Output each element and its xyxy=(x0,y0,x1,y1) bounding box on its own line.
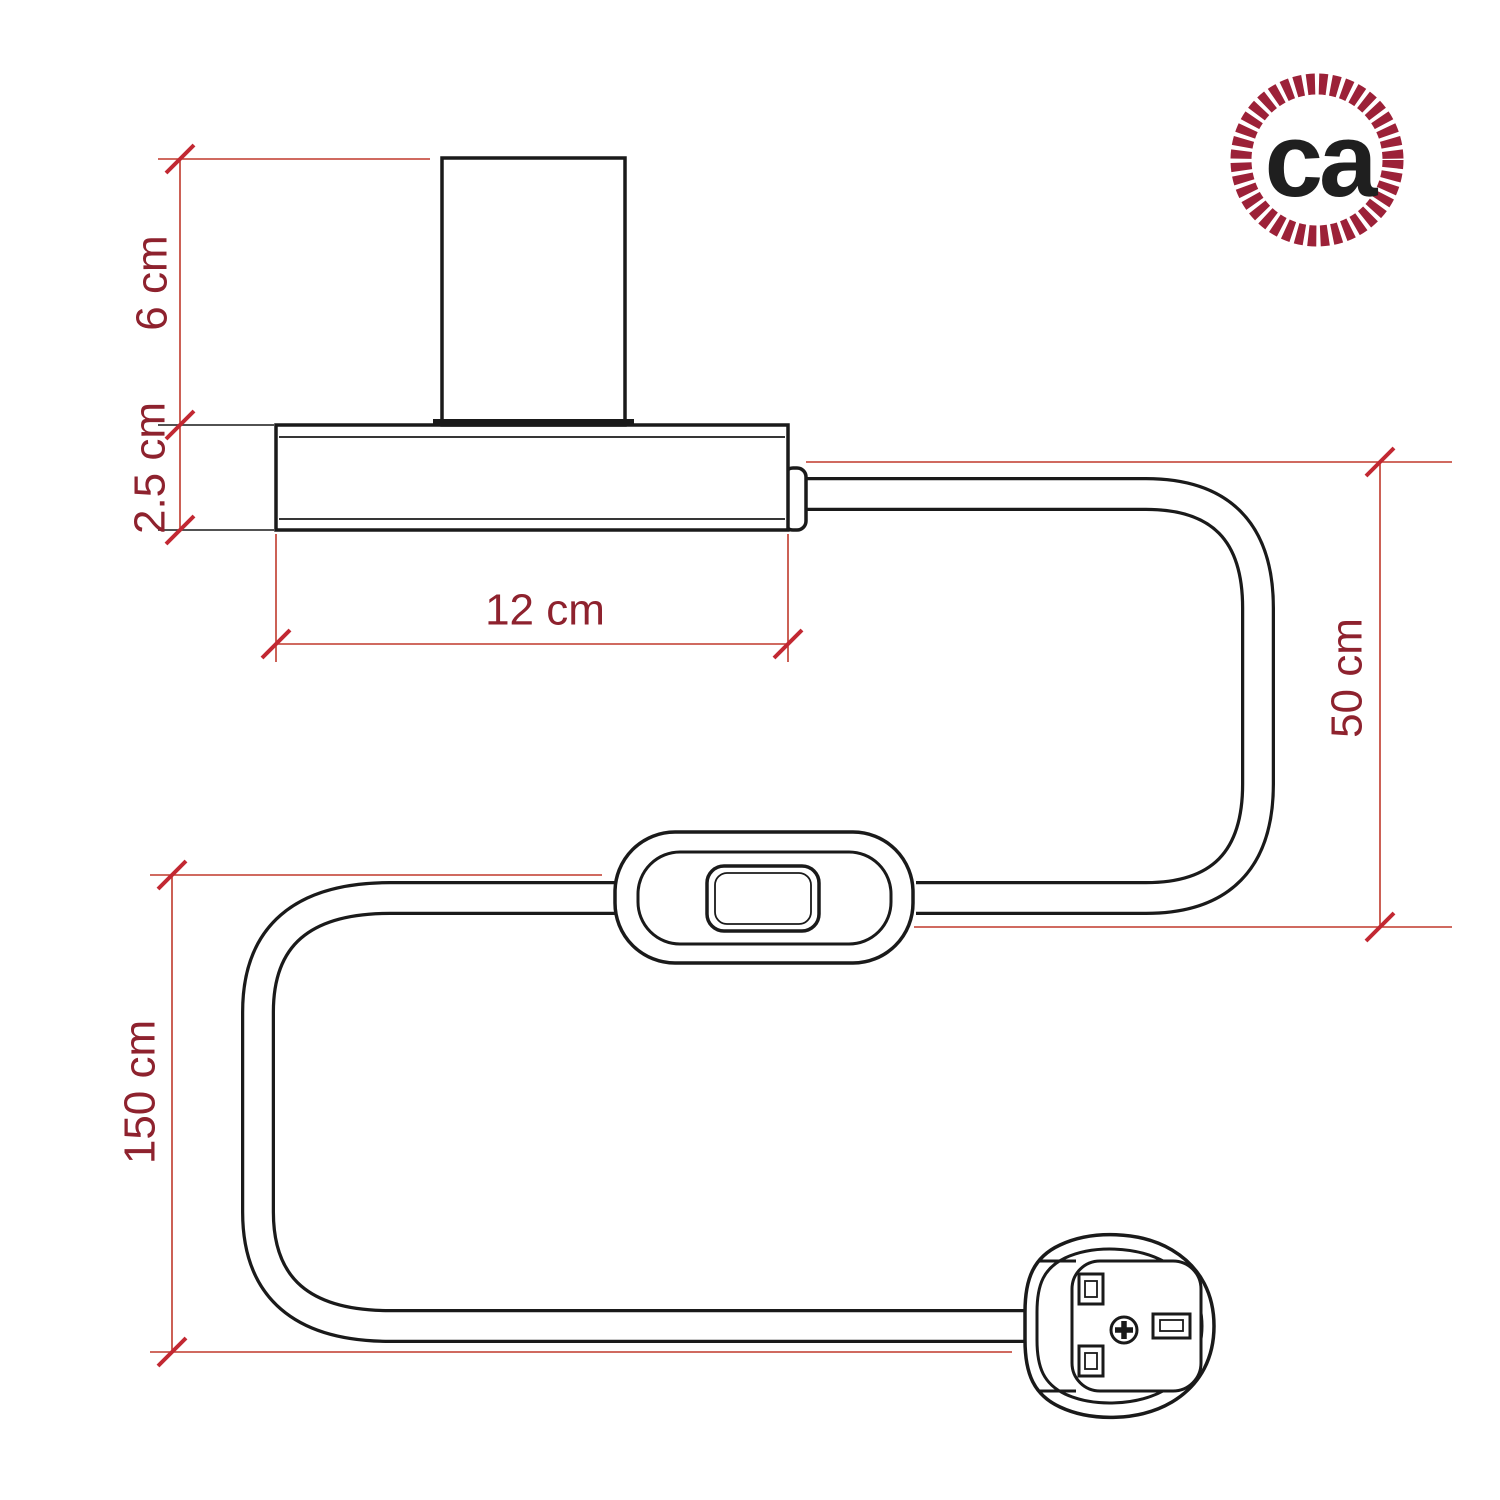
brand-logo: ca xyxy=(1241,84,1393,236)
label-base-height: 2.5 cm xyxy=(126,402,175,534)
inline-switch xyxy=(615,832,913,963)
label-holder-height: 6 cm xyxy=(128,235,177,330)
dimension-ticks xyxy=(158,145,1394,1366)
label-cable-upper: 50 cm xyxy=(1323,618,1372,738)
lamp-base xyxy=(276,425,788,530)
label-base-width: 12 cm xyxy=(485,586,605,635)
logo-text: ca xyxy=(1265,102,1379,219)
dimension-diagram: 6 cm 2.5 cm 12 cm 50 cm 150 cm ca xyxy=(0,0,1500,1500)
lamp-holder-cylinder xyxy=(442,158,625,425)
uk-plug xyxy=(1025,1235,1214,1418)
label-cable-lower: 150 cm xyxy=(116,1020,165,1164)
dimension-labels: 6 cm 2.5 cm 12 cm 50 cm 150 cm xyxy=(116,235,1372,1164)
lamp-base-assembly xyxy=(276,158,806,530)
cable-lower xyxy=(258,898,1032,1326)
